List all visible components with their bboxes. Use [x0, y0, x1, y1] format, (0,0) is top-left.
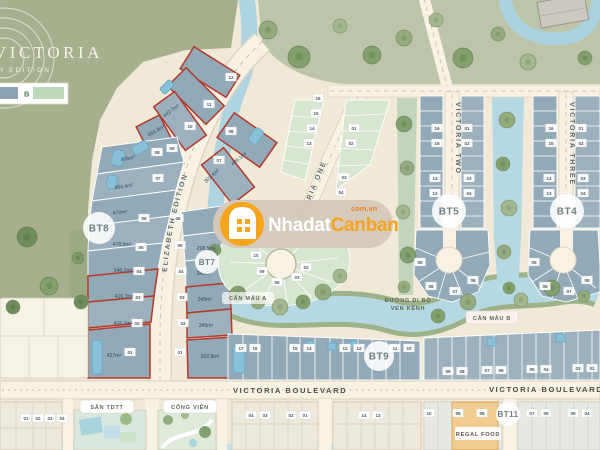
lot-chip: 01: [351, 126, 357, 131]
lot-chip: 06: [543, 411, 549, 416]
lot-area: 416.7m²: [115, 294, 134, 300]
lot-chip: 15: [313, 111, 319, 116]
lot-chip: 03: [341, 175, 347, 180]
label-walkway-line2: VEN KÊNH: [391, 304, 426, 312]
road-label-victoria-three: VICTORIA THREE: [568, 102, 575, 186]
lot-chip: 02: [288, 413, 294, 418]
lot-chip: 12: [356, 346, 362, 351]
lot-chip: 09: [455, 411, 461, 416]
label-san-tdtt: SÂN TDTT: [80, 400, 134, 413]
lot-chip: 05: [570, 411, 576, 416]
lot-chip: 16: [315, 96, 321, 101]
svg-text:BT9: BT9: [369, 352, 389, 363]
lot-chip: 02: [303, 265, 309, 270]
lot-chip: 06: [542, 284, 548, 289]
lot-chip: 02: [348, 141, 354, 146]
lot-chip: 04: [59, 416, 65, 421]
label-regal-food: REGAL FOOD: [455, 427, 501, 440]
lot-chip: 02: [589, 366, 595, 371]
lot-chip: 12: [228, 75, 234, 80]
lot-chip: 07: [452, 289, 458, 294]
lot-chip: 13: [342, 346, 348, 351]
lot-chip: 16: [252, 346, 258, 351]
lot-chip: 07: [484, 368, 490, 373]
lot-chip: 15: [292, 346, 298, 351]
masterplan-map: 12 11 10 09 08 07 06 05 04 03 02 01 08 0…: [0, 0, 600, 450]
svg-text:NhadatCanban: NhadatCanban: [268, 215, 398, 236]
svg-text:BT11: BT11: [497, 410, 518, 419]
lot-chip: 14: [309, 126, 315, 131]
lot-chip: 04: [466, 191, 472, 196]
lot-chip: 03: [47, 416, 53, 421]
lot-chip: 16: [548, 126, 554, 131]
lot-chip: 01: [578, 126, 584, 131]
lot-chip: 14: [361, 413, 367, 418]
lot-chip: 04: [580, 191, 586, 196]
lot-chip: 04: [584, 411, 590, 416]
lot-chip: 17: [238, 346, 244, 351]
lot-chip: 06: [428, 284, 434, 289]
lot-chip: 04: [543, 367, 549, 372]
legend: B: [0, 83, 68, 104]
svg-text:BT4: BT4: [557, 207, 577, 218]
lot-chip: 11: [207, 102, 212, 107]
lot-chip: 07: [216, 158, 222, 163]
lot-chip: 03: [580, 176, 586, 181]
lot-chip: 01: [23, 416, 29, 421]
label-walkway-line1: ĐƯỜNG ĐI BỘ: [385, 296, 432, 304]
label-cong-vien: CÔNG VIÊN: [163, 400, 217, 413]
lot-chip: 13: [546, 191, 552, 196]
watermark: NhadatCanban com.vn: [213, 200, 398, 248]
svg-text:BT7: BT7: [199, 258, 216, 267]
badge-bt5: BT5: [432, 194, 466, 228]
svg-text:BT8: BT8: [89, 224, 109, 235]
lot-chip: 05: [417, 260, 423, 265]
lot-area: 345m²: [199, 323, 214, 329]
svg-text:CĂN MẪU A: CĂN MẪU A: [229, 295, 267, 302]
lot-chip: 02: [180, 321, 186, 326]
watermark-domain: com.vn: [351, 204, 378, 213]
lot-chip: 13: [432, 191, 438, 196]
lot-chip: 01: [177, 350, 183, 355]
lot-chip: 09: [445, 369, 451, 374]
lot-chip: 14: [432, 176, 438, 181]
road-label-boulevard-right: VICTORIA BOULEVARD: [489, 385, 600, 394]
lot-chip: 14: [546, 176, 552, 181]
lot-area: 345m²: [198, 297, 213, 303]
logo-title: VICTORIA: [0, 43, 103, 62]
lot-chip: 15: [434, 141, 440, 146]
logo-subtitle: H EDITION: [0, 67, 51, 74]
lot-chip: 15: [548, 141, 554, 146]
lot-chip: 13: [375, 413, 381, 418]
lot-chip: 07: [566, 289, 572, 294]
lot-chip: 03: [466, 176, 472, 181]
legend-swatch-b: [33, 87, 64, 99]
lot-chip: 03: [179, 295, 185, 300]
badge-bt9: BT9: [364, 341, 394, 371]
lot-chip: 01: [464, 126, 470, 131]
lot-chip: 08: [228, 129, 234, 134]
lot-chip: 10: [406, 346, 412, 351]
lot-chip: 04: [178, 269, 184, 274]
badge-bt4: BT4: [550, 194, 584, 228]
svg-text:REGAL FOOD: REGAL FOOD: [456, 432, 500, 438]
lot-chip: 10: [426, 411, 432, 416]
svg-text:BT5: BT5: [439, 207, 459, 218]
lot-chip: 05: [529, 367, 535, 372]
lot-chip: 13: [306, 141, 312, 146]
legend-label-b: B: [24, 90, 30, 99]
lot-chip: 07: [529, 411, 535, 416]
road-label-boulevard-left: VICTORIA BOULEVARD: [233, 386, 347, 395]
badge-bt7: BT7: [195, 250, 219, 274]
lot-chip: 02: [134, 321, 140, 326]
badge-bt8: BT8: [83, 212, 115, 244]
lot-chip: 05: [138, 245, 144, 250]
lot-chip: 06: [141, 216, 147, 221]
lot-chip: 02: [464, 141, 470, 146]
lot-chip: 06: [498, 368, 504, 373]
lot-chip: 03: [294, 275, 300, 280]
label-can-mau-b: CĂN MẪU B: [466, 311, 518, 324]
lot-area: 346.1m²: [114, 268, 133, 274]
lot-chip: 04: [338, 190, 344, 195]
watermark-brand-light: Nhadat: [268, 215, 332, 236]
lot-area: 416.7m²: [114, 321, 133, 327]
lot-chip: 14: [306, 346, 312, 351]
lot-chip: 07: [155, 176, 161, 181]
lot-chip: 09: [169, 146, 175, 151]
lot-chip: 11: [393, 346, 398, 351]
svg-text:CÔNG VIÊN: CÔNG VIÊN: [171, 403, 209, 411]
lot-chip: 03: [135, 295, 141, 300]
lot-chip: 08: [584, 278, 590, 283]
lot-area: 427m²: [107, 353, 122, 359]
label-can-mau-a: CĂN MẪU A: [222, 292, 274, 304]
lot-area: 478.5m²: [113, 242, 132, 248]
road-label-victoria-two: VICTORIA TWO: [454, 102, 461, 175]
lot-chip: 01: [302, 413, 308, 418]
lot-chip: 08: [479, 411, 485, 416]
lot-chip: 08: [154, 150, 160, 155]
lot-chip: 08: [459, 369, 465, 374]
lot-chip: 10: [253, 253, 259, 258]
lot-chip: 05: [531, 260, 537, 265]
lot-chip: 03: [262, 413, 268, 418]
lot-chip: 10: [187, 124, 193, 129]
lot-chip: 05: [177, 243, 183, 248]
lot-chip: 08: [470, 278, 476, 283]
lot-chip: 01: [127, 350, 133, 355]
lot-area: 302.8m²: [201, 354, 220, 360]
watermark-brand-orange: Canban: [331, 215, 399, 236]
svg-text:SÂN TDTT: SÂN TDTT: [90, 404, 123, 411]
lot-chip: 02: [35, 416, 41, 421]
svg-text:CĂN MẪU B: CĂN MẪU B: [473, 315, 511, 322]
lot-chip: 04: [248, 413, 254, 418]
lot-chip: 08: [274, 280, 280, 285]
badge-bt11: BT11: [496, 402, 520, 426]
lot-chip: 16: [434, 126, 440, 131]
lot-chip: 03: [575, 366, 581, 371]
lot-chip: 02: [578, 141, 584, 146]
legend-swatch-a: [0, 87, 18, 99]
lot-chip: 09: [259, 269, 265, 274]
lot-chip: 04: [136, 269, 142, 274]
